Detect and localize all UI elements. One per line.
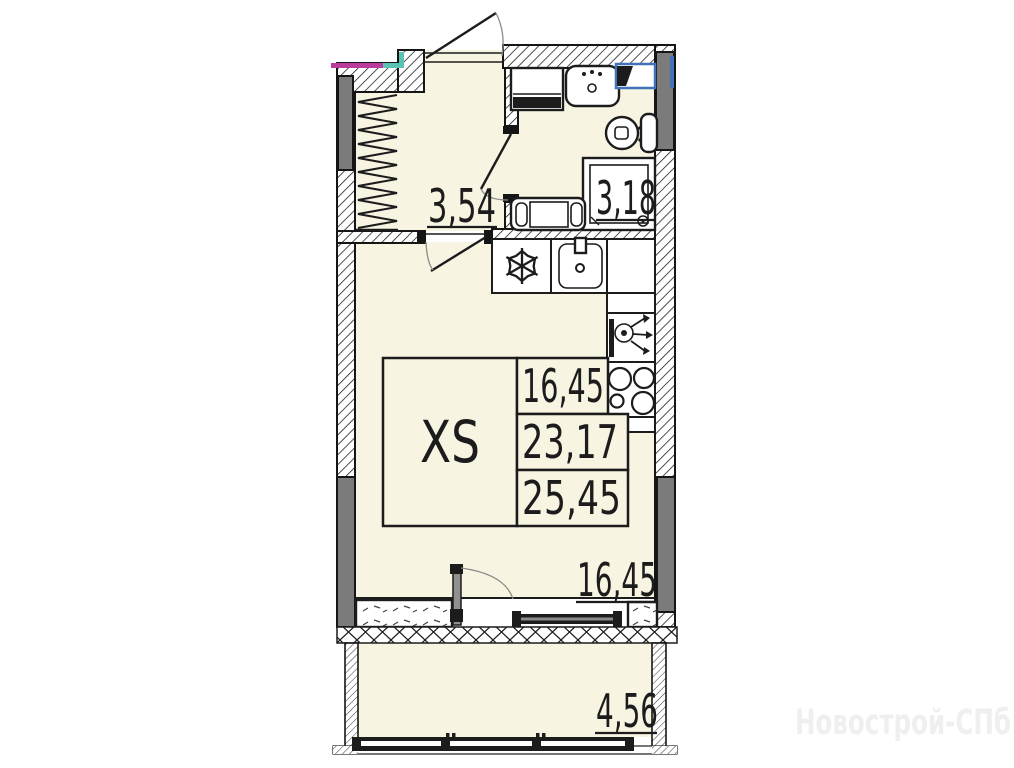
bathroom-sink-icon bbox=[566, 66, 619, 106]
washing-machine-icon bbox=[511, 68, 563, 110]
floor-plan-drawing: 3,54 3,18 XS 16,45 23,17 25,45 16,45 4,5… bbox=[0, 0, 1014, 768]
area-value-2: 23,17 bbox=[522, 415, 618, 469]
ventilation-duct-icon bbox=[616, 64, 655, 88]
balcony-area-label: 4,56 bbox=[596, 684, 658, 738]
unit-type-label: XS bbox=[420, 408, 480, 476]
column-top-left bbox=[338, 76, 353, 170]
bathroom-area-label: 3,18 bbox=[596, 171, 656, 225]
watermark: Новострой-СПб bbox=[795, 703, 1011, 743]
window bbox=[512, 611, 622, 627]
floor-plan-page: 3,54 3,18 XS 16,45 23,17 25,45 16,45 4,5… bbox=[0, 0, 1014, 768]
door-jamb bbox=[503, 126, 519, 134]
balcony-left-wall bbox=[345, 643, 358, 748]
blue-riser-mark bbox=[670, 56, 674, 88]
column-bottom-left bbox=[337, 477, 355, 627]
living-room-area-label: 16,45 bbox=[577, 553, 657, 607]
door-jamb bbox=[417, 230, 426, 244]
insulated-sill-panel-left bbox=[356, 600, 452, 627]
toilet-icon bbox=[606, 114, 657, 152]
area-value-1: 16,45 bbox=[522, 359, 604, 413]
exterior-wall-strip bbox=[337, 627, 677, 643]
kitchen-counter-top bbox=[492, 239, 655, 293]
hallway-bottom-wall bbox=[337, 231, 424, 243]
teal-utility-line-vertical bbox=[399, 52, 404, 66]
bathtub-icon bbox=[511, 198, 585, 230]
magenta-utility-line bbox=[331, 63, 385, 68]
hallway-area-label: 3,54 bbox=[428, 179, 496, 233]
column-bottom-right bbox=[657, 477, 675, 612]
area-value-3: 25,45 bbox=[522, 471, 621, 525]
